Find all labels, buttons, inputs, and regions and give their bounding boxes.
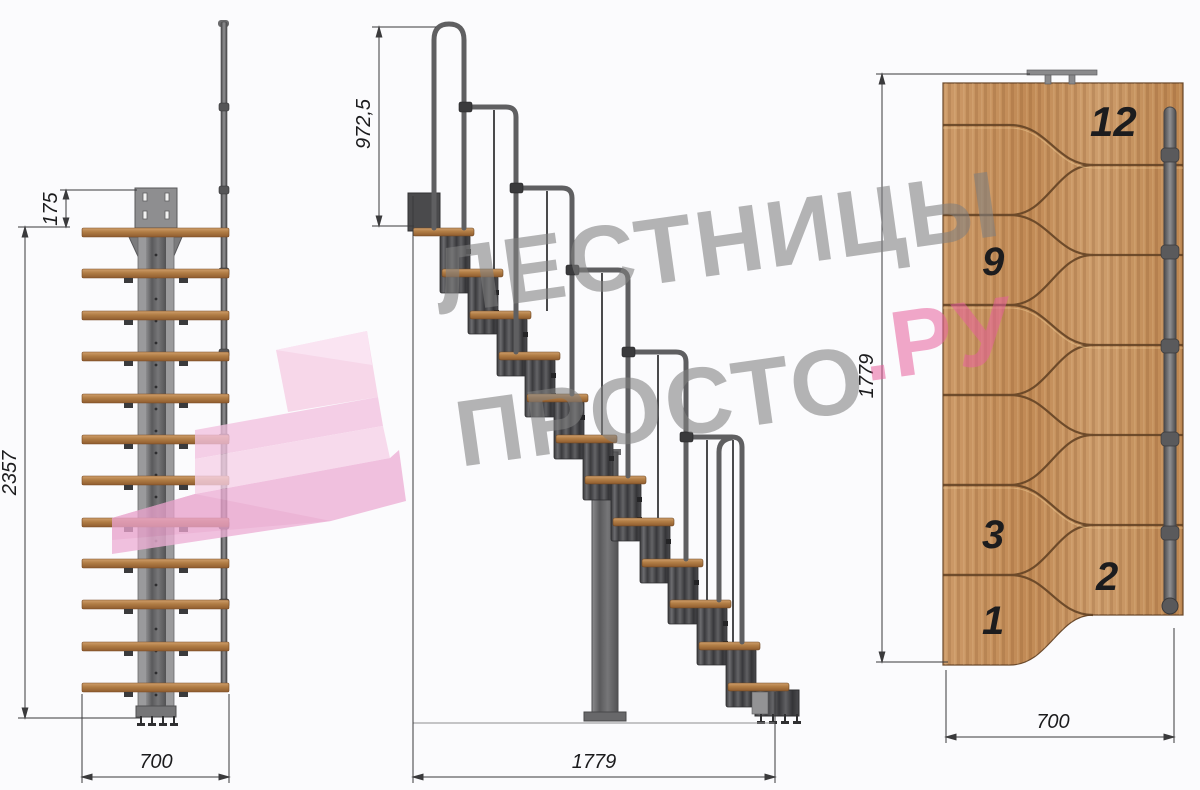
dim-label-1779-side: 1779 [572, 751, 617, 773]
plan-wall-bracket [1027, 70, 1097, 84]
dim-label-2357: 2357 [0, 450, 21, 496]
wall-plate [135, 188, 177, 228]
step-number-9: 9 [982, 240, 1005, 284]
column-foot [136, 706, 176, 717]
step-number-1: 1 [982, 599, 1004, 643]
technical-drawing-page: 12 9 3 2 1 175 [0, 0, 1200, 790]
wood-grain [943, 83, 1183, 665]
dim-label-175: 175 [40, 191, 62, 225]
side-view [408, 24, 801, 724]
dim-label-700-front: 700 [139, 751, 172, 773]
plan-view: 12 9 3 2 1 [943, 70, 1183, 665]
dim-front-offset: 175 [40, 190, 137, 227]
step-number-12: 12 [1090, 98, 1137, 145]
front-view [82, 20, 229, 726]
dim-label-1779-plan: 1779 [856, 354, 878, 399]
step-number-3: 3 [982, 513, 1004, 557]
column-foot-side [584, 712, 626, 721]
dim-label-972-5: 972,5 [353, 98, 375, 149]
handrail-end-ball [1162, 598, 1178, 614]
dim-label-700-plan: 700 [1036, 711, 1069, 733]
staircase-drawing: 12 9 3 2 1 175 [0, 0, 1200, 790]
step-number-2: 2 [1095, 555, 1118, 599]
